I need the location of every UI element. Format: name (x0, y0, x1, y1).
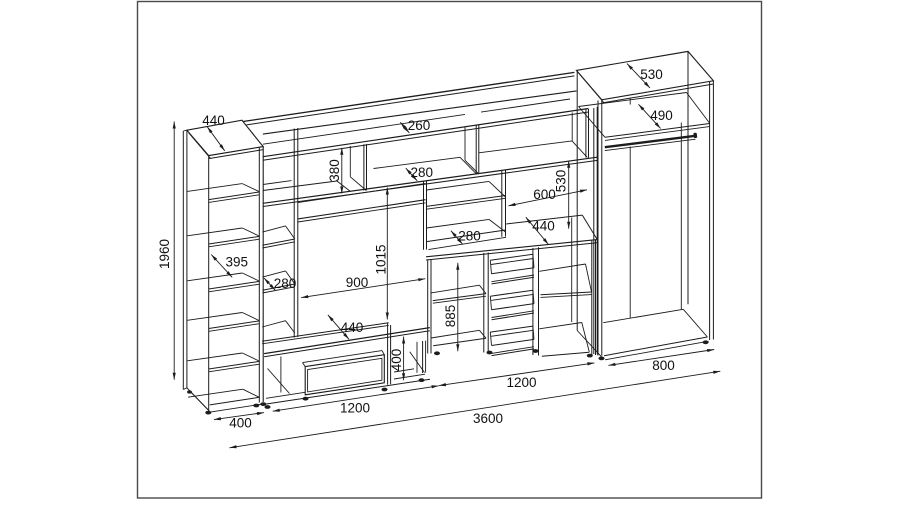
svg-text:490: 490 (650, 108, 673, 123)
svg-text:440: 440 (341, 320, 364, 335)
svg-text:400: 400 (229, 416, 252, 431)
svg-text:900: 900 (346, 275, 369, 290)
svg-text:1015: 1015 (373, 244, 388, 274)
svg-text:1960: 1960 (157, 239, 172, 269)
svg-text:600: 600 (533, 187, 556, 202)
svg-text:260: 260 (408, 118, 431, 133)
svg-text:280: 280 (411, 165, 434, 180)
svg-text:440: 440 (202, 113, 225, 128)
svg-text:395: 395 (226, 255, 249, 270)
svg-text:530: 530 (640, 67, 663, 82)
svg-text:380: 380 (327, 159, 342, 182)
svg-text:1200: 1200 (506, 375, 536, 390)
svg-text:280: 280 (274, 276, 297, 291)
svg-text:885: 885 (443, 305, 458, 328)
svg-text:530: 530 (554, 170, 569, 193)
svg-text:800: 800 (652, 358, 675, 373)
svg-text:3600: 3600 (473, 411, 503, 426)
svg-text:280: 280 (458, 229, 481, 244)
svg-text:400: 400 (389, 349, 404, 372)
svg-text:1200: 1200 (340, 400, 370, 415)
